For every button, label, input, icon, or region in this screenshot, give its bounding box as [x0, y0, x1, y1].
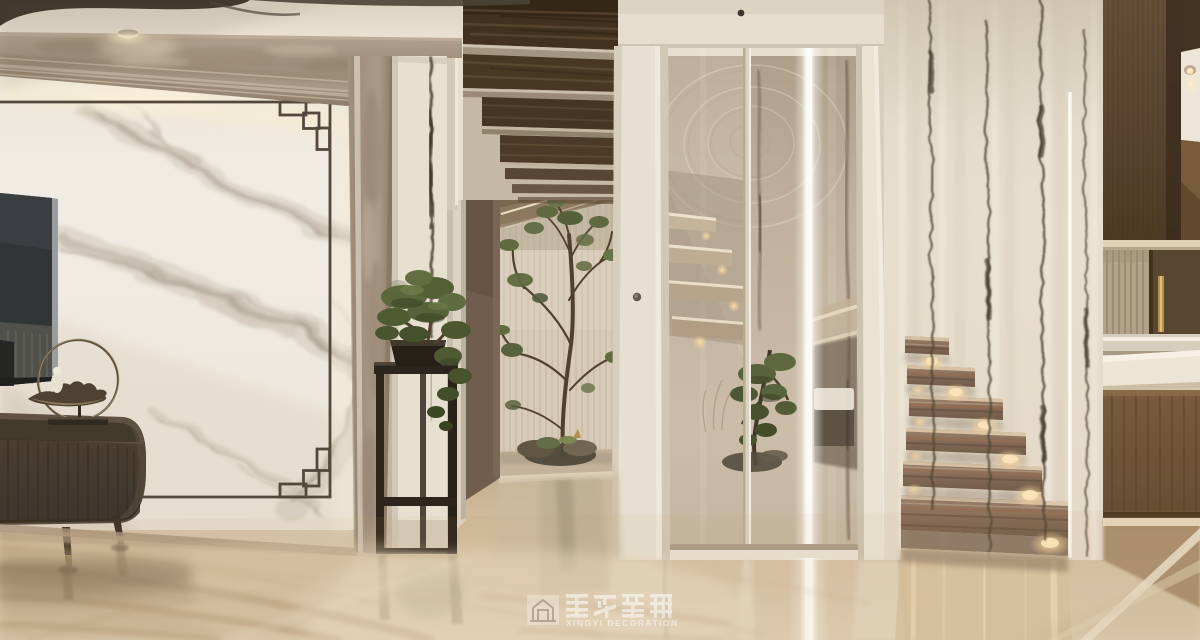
svg-text:XINGYI DECORATION: XINGYI DECORATION [566, 618, 678, 628]
